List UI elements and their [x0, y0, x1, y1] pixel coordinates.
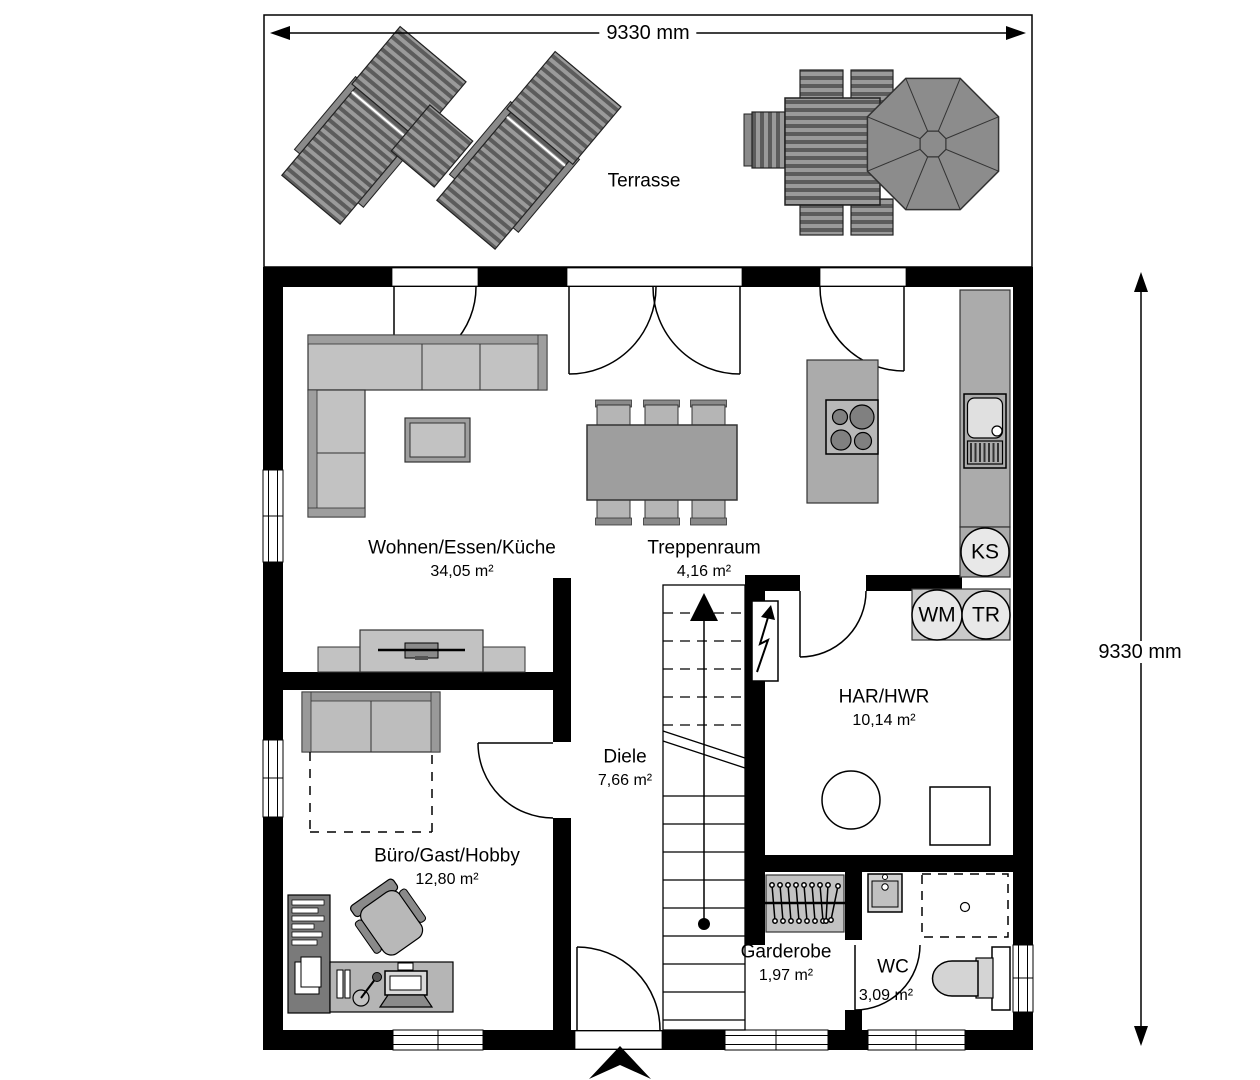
desk-icon: [330, 962, 453, 1012]
room-label-office: Büro/Gast/Hobby: [374, 847, 520, 868]
dining-set-icon: [587, 400, 737, 525]
room-area-living: 34,05 m²: [430, 563, 493, 581]
fridge-label: KS: [971, 540, 999, 563]
room-label-wardrobe: Garderobe: [741, 943, 832, 964]
utility-unit: [930, 787, 990, 845]
electrical-panel-icon: [752, 601, 778, 681]
window-bottom-wardrobe: [725, 1030, 828, 1050]
dryer-label: TR: [972, 603, 1000, 626]
front-door-opening: [575, 1031, 662, 1049]
room-label-terrace: Terrasse: [608, 172, 681, 193]
room-area-wc: 3,09 m²: [859, 987, 913, 1005]
room-area-stairs: 4,16 m²: [677, 563, 731, 581]
coffee-table-icon: [405, 418, 470, 462]
window-left-office: [263, 740, 283, 817]
room-label-utility: HAR/HWR: [839, 688, 930, 709]
shelf-icon: [288, 895, 330, 1013]
dimension-top-label: 9330 mm: [599, 22, 696, 44]
floor-plan-drawing: [0, 0, 1260, 1080]
window-right-wc: [1013, 945, 1033, 1012]
dining-table: [587, 425, 737, 500]
washing-machine-label: WM: [918, 603, 955, 626]
room-label-wc: WC: [877, 958, 909, 979]
cooktop-icon: [826, 400, 878, 454]
room-label-stairs: Treppenraum: [647, 539, 760, 560]
kitchen-island: [807, 360, 878, 503]
dimension-right-label: 9330 mm: [1091, 641, 1188, 663]
room-label-hall: Diele: [603, 748, 646, 769]
room-area-utility: 10,14 m²: [852, 712, 915, 730]
room-area-office: 12,80 m²: [415, 871, 478, 889]
top-wall-openings: [392, 268, 906, 286]
room-area-wardrobe: 1,97 m²: [759, 967, 813, 985]
room-label-living: Wohnen/Essen/Küche: [368, 539, 556, 560]
window-left-living: [263, 470, 283, 562]
staircase: [663, 585, 745, 1030]
parasol-icon: [867, 78, 998, 209]
sink-icon: [964, 394, 1006, 468]
boiler-icon: [822, 771, 880, 829]
window-bottom-office: [393, 1030, 483, 1050]
terrace-area: [264, 15, 1032, 267]
floor-plan: 9330 mm 9330 mm Terrasse Wohnen/Essen/Kü…: [0, 0, 1260, 1080]
entrance-arrow-icon: [589, 1046, 651, 1079]
room-area-hall: 7,66 m²: [598, 772, 652, 790]
washbasin-icon: [868, 874, 902, 912]
window-bottom-wc: [868, 1030, 965, 1050]
coat-rack-icon: [760, 875, 850, 932]
